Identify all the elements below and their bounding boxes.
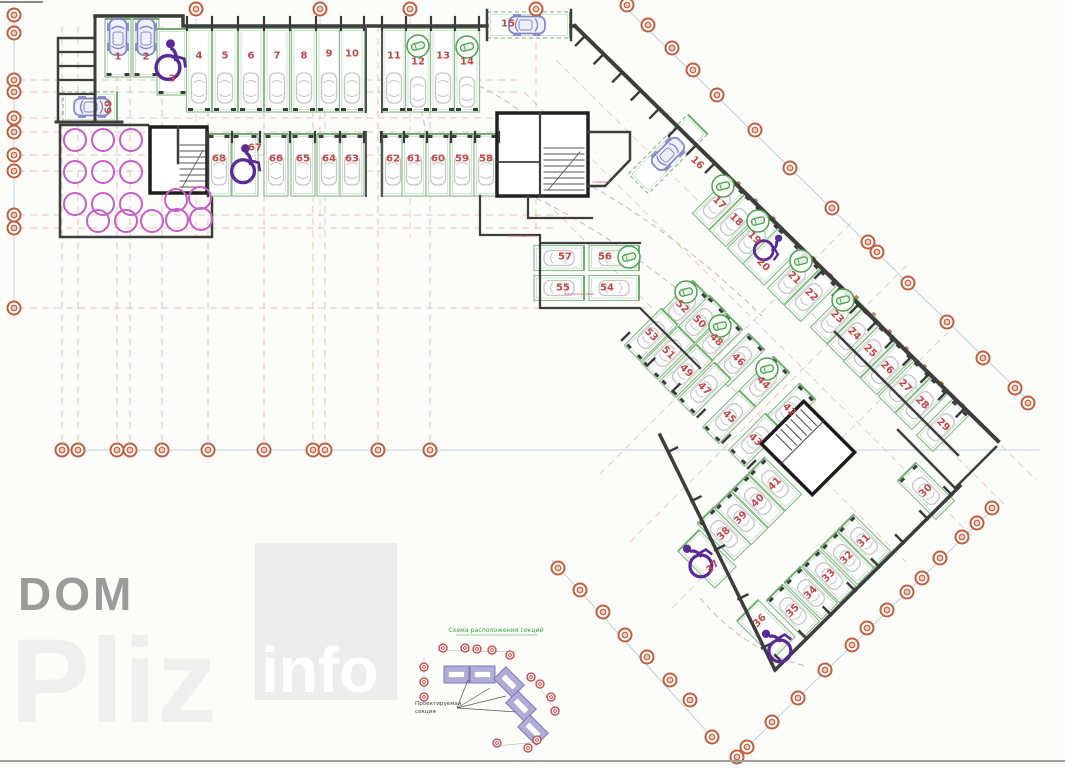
- grid-marker-circle: [8, 126, 21, 139]
- eco-spot-icon: [618, 246, 640, 268]
- inset-grid-circle: [536, 680, 544, 688]
- parking-spot-6: [239, 25, 264, 113]
- grid-marker-circle: [741, 741, 754, 754]
- grid-marker-circle: [684, 694, 697, 707]
- grid-marker-circle: [190, 3, 203, 16]
- watermark-pliz: Pliz: [10, 614, 217, 748]
- grid-marker-circle: [934, 552, 947, 565]
- storage-circle: [64, 161, 86, 183]
- grid-marker-circle: [8, 27, 21, 40]
- spot-number-8: 8: [301, 51, 308, 62]
- grid-marker-circle: [8, 9, 21, 22]
- spot-number-58: 58: [479, 154, 493, 165]
- inset-grid-circles: [420, 644, 559, 752]
- wall-stub: [576, 36, 585, 45]
- spot-number-64: 64: [322, 154, 336, 165]
- grid-marker-circle: [621, 0, 634, 12]
- parking-spot-3: [157, 29, 187, 95]
- grid-marker-circle: [619, 629, 632, 642]
- spot-number-10: 10: [345, 49, 359, 60]
- grid-marker-circle: [8, 149, 21, 162]
- grid-marker-circle: [711, 89, 724, 102]
- parking-spot-4: [187, 25, 212, 113]
- parking-spot-60: [426, 134, 450, 196]
- parking-spot-68: [207, 134, 231, 196]
- inset-arrow: [457, 688, 490, 708]
- room-label: электрощитовая: [564, 292, 594, 296]
- grid-marker-circle: [792, 692, 805, 705]
- joint-walls: [366, 26, 382, 196]
- spot-number-15: 15: [501, 19, 515, 30]
- parking-spot-10: [340, 25, 365, 113]
- inset-title: Схема расположения секций: [448, 626, 543, 634]
- grid-marker-circle: [706, 731, 719, 744]
- parking-spot-65: [291, 134, 315, 196]
- parking-spot-63: [340, 134, 364, 196]
- eco-spot-icon: [456, 36, 478, 58]
- spot-number-12: 12: [411, 57, 425, 68]
- inset-grid-circle: [420, 678, 428, 686]
- ghost-car-icon: [270, 73, 285, 103]
- grid-marker-circle: [72, 444, 85, 457]
- grid-marker-circle: [8, 222, 21, 235]
- grid-marker-circle: [319, 444, 332, 457]
- grid-marker-circle: [784, 162, 797, 175]
- grid-marker-circle: [641, 651, 654, 664]
- spot-number-1: 1: [115, 52, 122, 63]
- parking-spot-1: [105, 19, 131, 77]
- inset-arrow: [457, 696, 506, 708]
- grid-marker-circle: [314, 3, 327, 16]
- grid-marker-circle: [8, 86, 21, 99]
- wall-stub: [650, 109, 659, 118]
- spot-number-61: 61: [407, 154, 421, 165]
- parking-spot-64: [317, 134, 341, 196]
- parking-spot-62: [381, 134, 405, 196]
- watermark-info: info: [261, 634, 378, 706]
- grid-marker-circle: [404, 3, 417, 16]
- inset-grid-circle: [506, 651, 514, 659]
- spot-number-69: 69: [102, 100, 113, 114]
- storage-circle: [120, 161, 142, 183]
- eco-spot-icon: [407, 35, 429, 57]
- grid-marker-circle: [971, 517, 984, 530]
- grid-marker-circle: [766, 716, 779, 729]
- spot-number-57: 57: [558, 252, 572, 263]
- parking-spot-5: [213, 25, 238, 113]
- spot-number-68: 68: [212, 154, 226, 165]
- parking-floor-plan: DOM Pliz info 1234567891011121314156: [0, 0, 1065, 768]
- inset-grid-circle: [473, 645, 481, 653]
- grid-marker-circle: [597, 606, 610, 619]
- inset-label-1: Проектируемая: [415, 701, 461, 707]
- watermark-dom: DOM: [18, 568, 134, 620]
- parking-spot-61: [402, 134, 426, 196]
- grid-marker-circle: [530, 3, 543, 16]
- spot-number-3: 3: [169, 74, 176, 85]
- spot-number-63: 63: [345, 154, 359, 165]
- grid-marker-circle: [861, 622, 874, 635]
- grid-marker-circle: [8, 209, 21, 222]
- grid-marker-circle: [8, 165, 21, 178]
- parking-spot-58: [474, 134, 498, 196]
- spot-number-9: 9: [326, 49, 333, 60]
- grid-marker-circle: [901, 586, 914, 599]
- spot-number-2: 2: [143, 52, 150, 63]
- grid-marker-circle: [749, 124, 762, 137]
- spot-number-59: 59: [455, 154, 469, 165]
- ghost-car-icon: [411, 77, 426, 107]
- inset-grid-circle: [439, 644, 447, 652]
- ghost-car-icon: [218, 73, 233, 103]
- grid-marker-circle: [902, 277, 915, 290]
- grid-marker-circle: [124, 444, 137, 457]
- inset-arrow: [457, 708, 516, 712]
- ghost-car-icon: [436, 73, 451, 103]
- spot-number-60: 60: [431, 154, 445, 165]
- wall-stub: [920, 511, 928, 519]
- wall-stub: [706, 163, 715, 172]
- wall-stub: [594, 54, 603, 63]
- grid-marker-circle: [977, 352, 990, 365]
- grid-marker-circle: [642, 19, 655, 32]
- grid-marker-circle: [574, 584, 587, 597]
- wall-stub: [896, 535, 904, 543]
- grid-marker-circle: [202, 444, 215, 457]
- watermark: DOM Pliz info: [10, 543, 397, 748]
- grid-marker-circle: [941, 316, 954, 329]
- spot-number-7: 7: [274, 51, 281, 62]
- inset-grid-circle: [547, 693, 555, 701]
- inset-grid-circle: [527, 673, 535, 681]
- parking-spot-8: [292, 25, 317, 113]
- wall-stub: [632, 90, 641, 99]
- room-label: техпомещение: [508, 234, 535, 238]
- storage-circle: [64, 129, 86, 151]
- grid-marker-circle: [56, 444, 69, 457]
- spot-number-11: 11: [387, 51, 401, 62]
- wall-stub: [622, 333, 629, 340]
- spot-number-56: 56: [598, 252, 612, 263]
- grid-marker-circle: [881, 604, 894, 617]
- inset-grid-circle: [533, 736, 541, 744]
- ramp-bars: [60, 52, 95, 94]
- inset-section: [470, 666, 495, 683]
- inset-label-2: секция: [415, 709, 436, 715]
- spot-number-65: 65: [296, 154, 310, 165]
- grid-marker-circle: [372, 444, 385, 457]
- ghost-car-icon: [460, 77, 475, 107]
- grid-marker-circle: [956, 531, 969, 544]
- grid-marker-circle: [666, 42, 679, 55]
- inset-grid-circle: [420, 663, 428, 671]
- spot-number-66: 66: [269, 154, 283, 165]
- inset-grid-circle: [420, 693, 428, 701]
- spot-number-6: 6: [248, 51, 255, 62]
- inset-grid-circle: [488, 646, 496, 654]
- storage-circle: [64, 193, 86, 215]
- spot-number-13: 13: [436, 51, 450, 62]
- inset-grid-circle: [524, 744, 532, 752]
- core-middle-extension: [588, 132, 630, 186]
- inset-diagram: Схема расположения секций Проектируемая …: [415, 626, 559, 752]
- ghost-car-icon: [387, 73, 402, 103]
- grid-marker-circle: [664, 674, 677, 687]
- grid-marker-circle: [111, 444, 124, 457]
- room-label: кладовая: [593, 180, 610, 184]
- car-icon: [135, 19, 157, 55]
- parking-spot-54: [589, 276, 639, 301]
- inset-grid-circle: [493, 739, 501, 747]
- parking-spot-9: [317, 25, 342, 113]
- storage-circle: [141, 210, 163, 232]
- grid-marker-circle: [552, 562, 565, 575]
- spot-number-5: 5: [222, 51, 229, 62]
- grid-marker-circle: [871, 246, 884, 259]
- grid-marker-circle: [916, 572, 929, 585]
- spot-number-62: 62: [386, 154, 400, 165]
- grid-marker-circle: [687, 64, 700, 77]
- car-icon: [107, 19, 129, 55]
- ghost-car-icon: [244, 73, 259, 103]
- storage-circle: [190, 208, 212, 230]
- floor-plan-canvas: DOM Pliz info 1234567891011121314156: [0, 0, 1065, 768]
- grid-marker-circle: [258, 444, 271, 457]
- spot-number-16: 16: [688, 154, 706, 172]
- storage-circle: [92, 161, 114, 183]
- grid-marker-circle: [1009, 382, 1022, 395]
- grid-marker-circle: [819, 664, 832, 677]
- grid-marker-circle: [8, 112, 21, 125]
- wall-stub: [613, 72, 622, 81]
- parking-spot-11: [382, 25, 407, 113]
- grid-marker-circle: [424, 444, 437, 457]
- parking-spot-7: [265, 25, 290, 113]
- parking-spot-59: [450, 134, 474, 196]
- parking-spot-66: [264, 134, 288, 196]
- grid-marker-circle: [8, 302, 21, 315]
- inset-section: [444, 666, 469, 683]
- ghost-car-icon: [192, 73, 207, 103]
- ghost-car-icon: [297, 73, 312, 103]
- grid-marker-circle: [986, 502, 999, 515]
- parking-spot-13: [431, 25, 456, 113]
- inset-grid-circle: [461, 644, 469, 652]
- inset-grid-circle: [551, 707, 559, 715]
- spot-number-67: 67: [248, 143, 262, 154]
- grid-marker-circle: [826, 202, 839, 215]
- spot-number-4: 4: [196, 51, 203, 62]
- ghost-car-icon: [345, 73, 360, 103]
- grid-marker-circle: [846, 639, 859, 652]
- wall-diagonal-outer: [575, 26, 998, 441]
- grid-marker-circle: [156, 444, 169, 457]
- eco-spot-icon: [712, 175, 734, 197]
- grid-marker-circle: [1022, 397, 1035, 410]
- spot-number-14: 14: [460, 57, 474, 68]
- eco-spot-icon: [747, 210, 769, 232]
- ghost-car-icon: [322, 73, 337, 103]
- spot-number-54: 54: [600, 283, 614, 294]
